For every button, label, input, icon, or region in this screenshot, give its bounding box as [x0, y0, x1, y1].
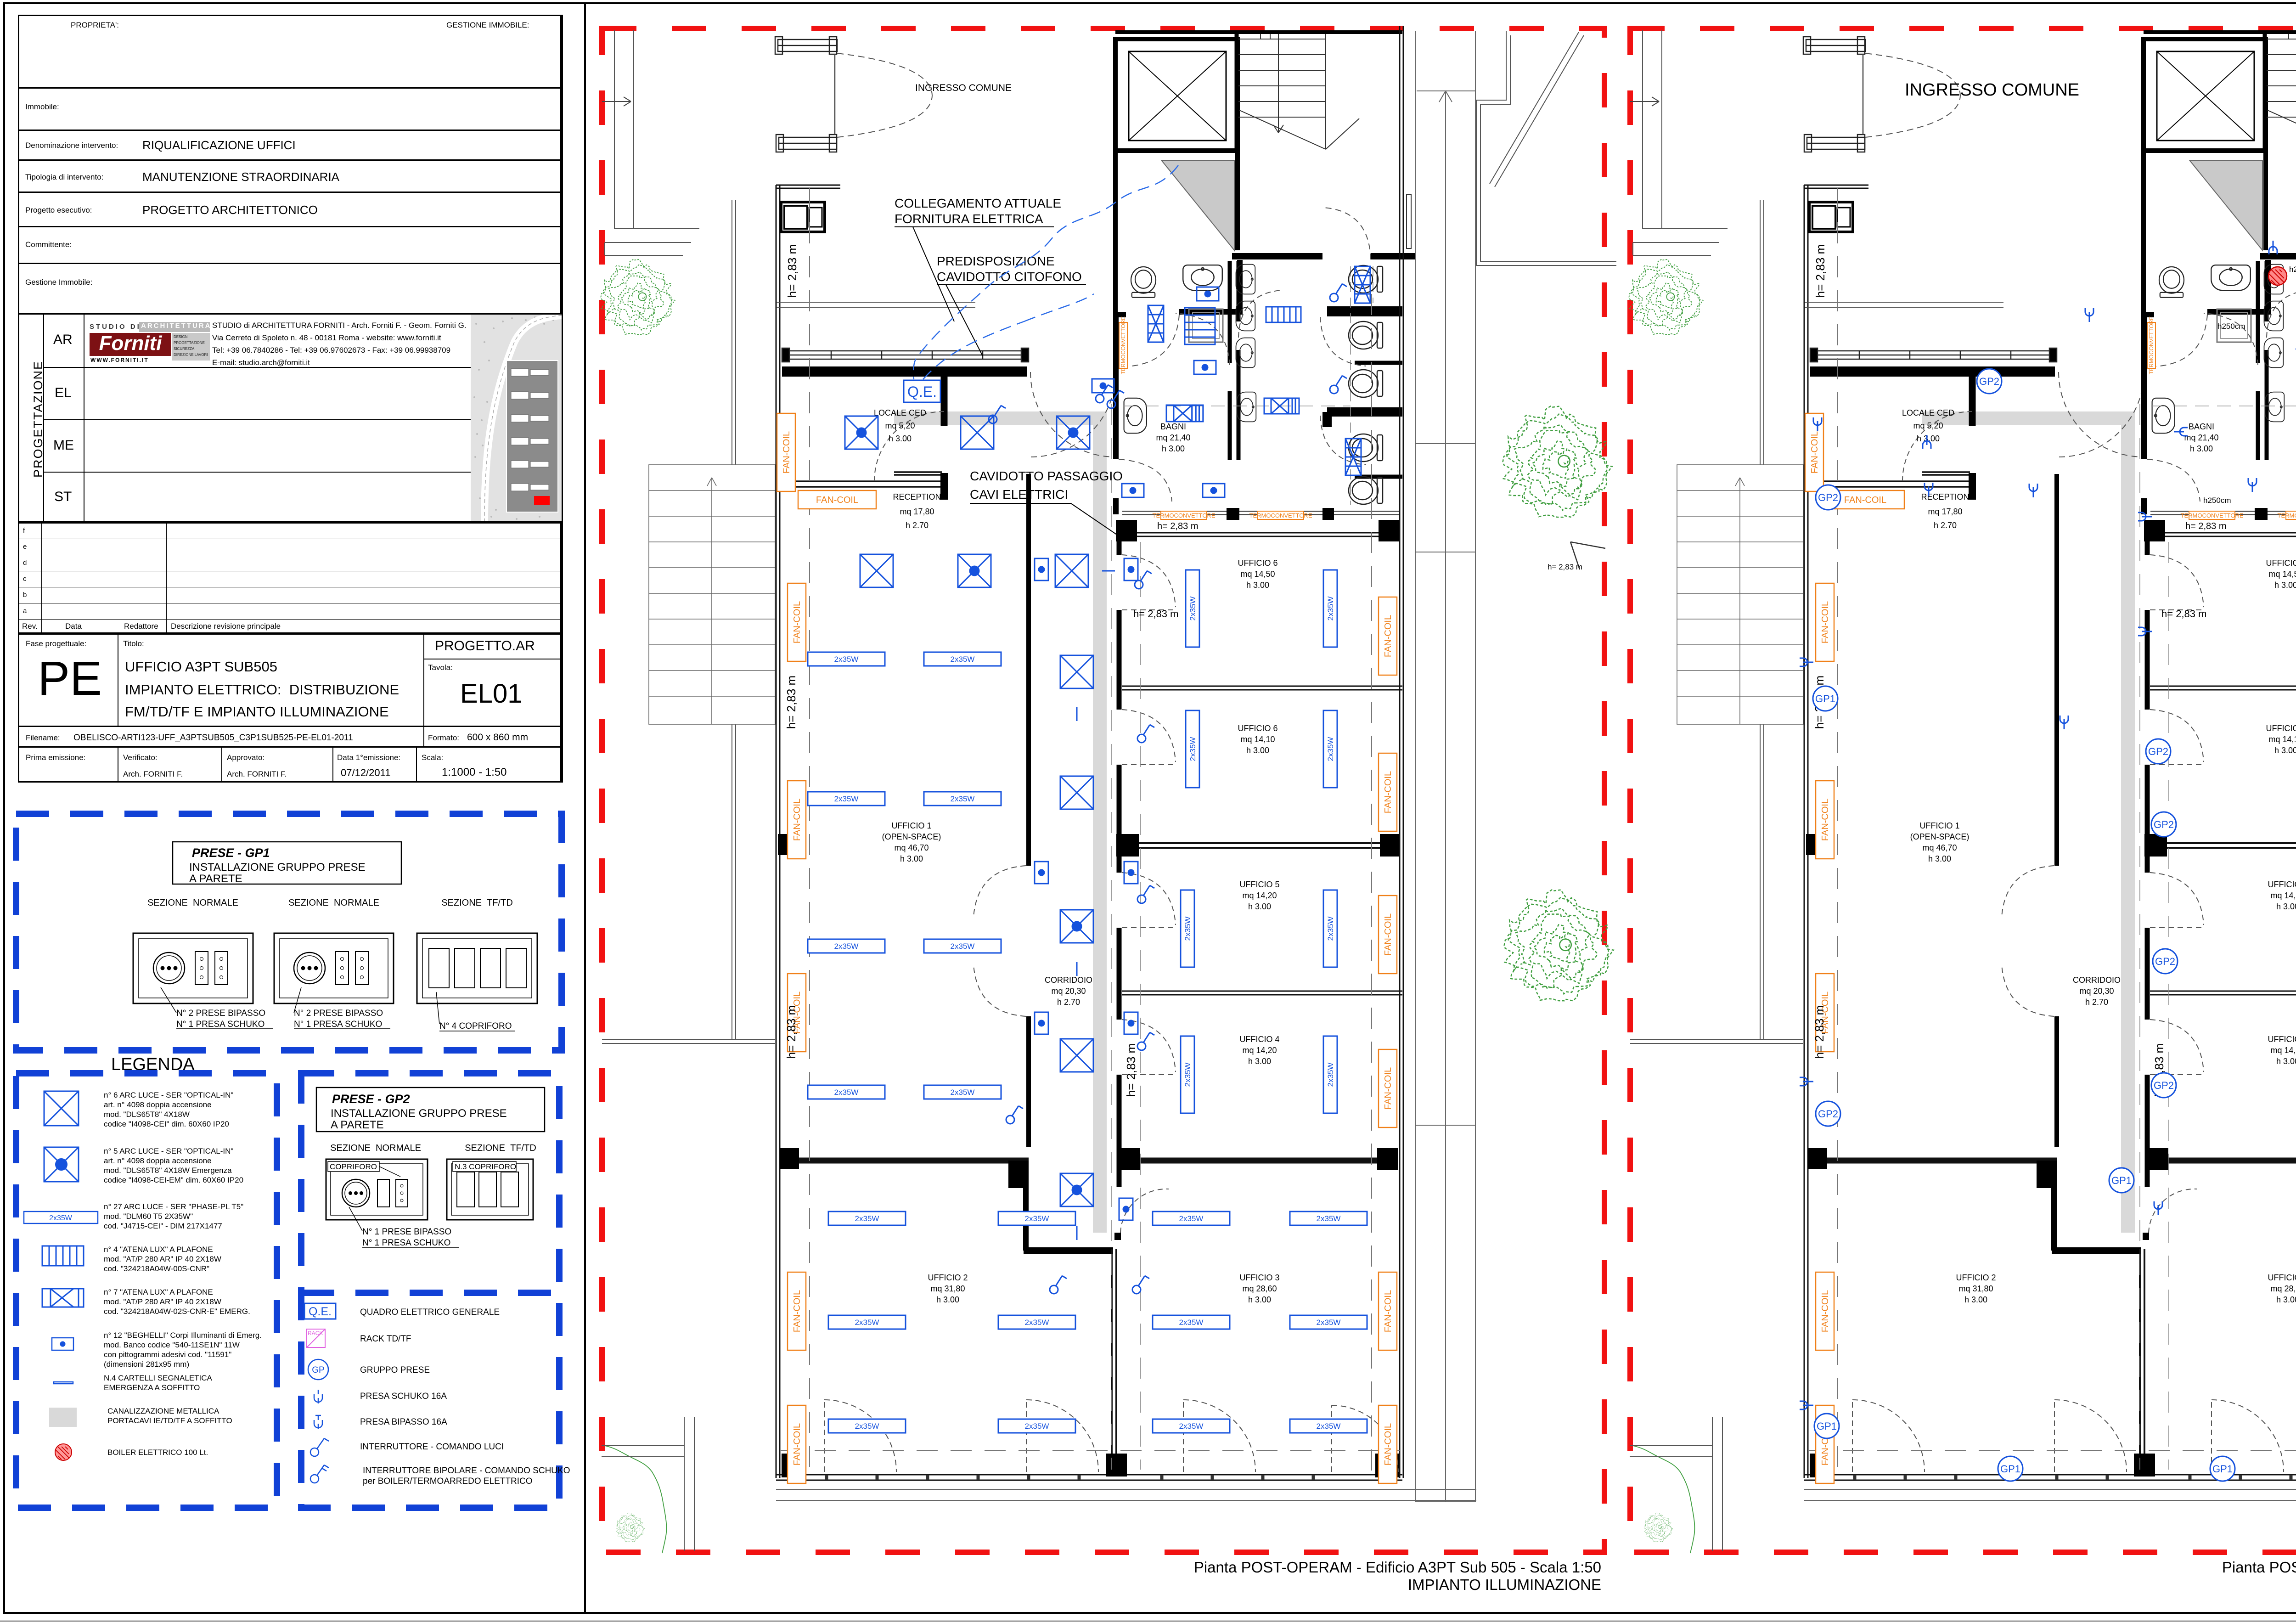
svg-text:INGRESSO COMUNE: INGRESSO COMUNE	[915, 83, 1012, 93]
svg-text:n° 4 "ATENA LUX" A PLAFONE: n° 4 "ATENA LUX" A PLAFONE	[104, 1245, 213, 1254]
svg-text:art. n° 4098 doppia accensione: art. n° 4098 doppia accensione	[104, 1156, 212, 1165]
svg-text:PRESE - GP1: PRESE - GP1	[192, 846, 270, 860]
svg-text:n° 7 "ATENA LUX" A PLAFONE: n° 7 "ATENA LUX" A PLAFONE	[104, 1288, 213, 1296]
svg-text:BOILER ELETTRICO 100 Lt.: BOILER ELETTRICO 100 Lt.	[107, 1448, 208, 1457]
svg-text:INTERRUTTORE - COMANDO LUCI: INTERRUTTORE - COMANDO LUCI	[360, 1442, 504, 1452]
svg-text:n° 6 ARC LUCE - SER "OPTICAL-I: n° 6 ARC LUCE - SER "OPTICAL-IN"	[104, 1091, 233, 1099]
svg-text:con pittogrammi adesivi cod. ": con pittogrammi adesivi cod. "11591"	[104, 1350, 231, 1359]
svg-text:Pianta POST-OPERAM - Edificio: Pianta POST-OPERAM - Edificio A3PT Sub 5…	[2222, 1559, 2296, 1576]
svg-text:h250cm: h250cm	[2217, 322, 2245, 331]
svg-text:N° 4 COPRIFORO: N° 4 COPRIFORO	[439, 1021, 512, 1031]
svg-text:PORTACAVI IE/TD/TF A SOFFITTO: PORTACAVI IE/TD/TF A SOFFITTO	[107, 1416, 232, 1425]
svg-text:codice "I4098-CEI" dim. 60X60: codice "I4098-CEI" dim. 60X60 IP20	[104, 1120, 229, 1128]
svg-text:mod. "DLS65T8" 4X18W Emergenza: mod. "DLS65T8" 4X18W Emergenza	[104, 1166, 232, 1175]
svg-text:mod. "DLM60 T5 2X35W": mod. "DLM60 T5 2X35W"	[104, 1212, 193, 1221]
svg-text:cod. "324218A04W-02S-CNR-E" EM: cod. "324218A04W-02S-CNR-E" EMERG.	[104, 1307, 250, 1316]
svg-text:mod. "AT/P 280 AR" IP 40 2X18W: mod. "AT/P 280 AR" IP 40 2X18W	[104, 1255, 221, 1263]
svg-text:art. n° 4098 doppia accensione: art. n° 4098 doppia accensione	[104, 1100, 212, 1109]
svg-text:COPRIFORO: COPRIFORO	[330, 1162, 377, 1171]
svg-text:(dimensioni 281x95 mm): (dimensioni 281x95 mm)	[104, 1360, 189, 1369]
svg-text:A PARETE: A PARETE	[331, 1119, 384, 1131]
svg-text:cod. "324218A04W-00S-CNR": cod. "324218A04W-00S-CNR"	[104, 1264, 209, 1273]
svg-text:N.4 CARTELLI SEGNALETICA: N.4 CARTELLI SEGNALETICA	[104, 1374, 213, 1382]
svg-text:cod. "J4715-CEI" - DIM 217X147: cod. "J4715-CEI" - DIM 217X1477	[104, 1222, 222, 1230]
svg-text:N° 1 PRESA SCHUKO: N° 1 PRESA SCHUKO	[176, 1020, 264, 1029]
svg-text:FORNITURA ELETTRICA: FORNITURA ELETTRICA	[895, 212, 1043, 226]
svg-text:RACK: RACK	[308, 1330, 323, 1336]
svg-text:PRESA SCHUKO 16A: PRESA SCHUKO 16A	[360, 1392, 447, 1401]
svg-text:PRESA BIPASSO 16A: PRESA BIPASSO 16A	[360, 1417, 447, 1427]
svg-text:INSTALLAZIONE GRUPPO PRESE: INSTALLAZIONE GRUPPO PRESE	[331, 1107, 507, 1120]
svg-text:n° 12 "BEGHELLI" Corpi Illumin: n° 12 "BEGHELLI" Corpi Illuminanti di Em…	[104, 1331, 262, 1340]
svg-text:COLLEGAMENTO ATTUALE: COLLEGAMENTO ATTUALE	[895, 196, 1061, 210]
svg-text:N° 2 PRESE BIPASSO: N° 2 PRESE BIPASSO	[294, 1009, 383, 1018]
svg-text:QUADRO ELETTRICO GENERALE: QUADRO ELETTRICO GENERALE	[360, 1307, 500, 1317]
svg-text:CAVIDOTTO PASSAGGIO: CAVIDOTTO PASSAGGIO	[970, 469, 1123, 483]
svg-text:N.3 COPRIFORO: N.3 COPRIFORO	[455, 1162, 516, 1171]
svg-text:CAVI ELETTRICI: CAVI ELETTRICI	[970, 487, 1068, 502]
svg-text:n° 5 ARC LUCE - SER "OPTICAL-I: n° 5 ARC LUCE - SER "OPTICAL-IN"	[104, 1147, 233, 1155]
svg-text:GP: GP	[312, 1365, 324, 1375]
svg-text:2x35W: 2x35W	[49, 1214, 73, 1222]
svg-text:CAVIDOTTO CITOFONO: CAVIDOTTO CITOFONO	[937, 270, 1082, 284]
svg-text:SEZIONE TF/TD: SEZIONE TF/TD	[465, 1143, 536, 1153]
svg-text:mod. "DLS65T8" 4X18W: mod. "DLS65T8" 4X18W	[104, 1110, 190, 1119]
svg-text:n° 27 ARC LUCE - SER "PHASE-PL: n° 27 ARC LUCE - SER "PHASE-PL T5"	[104, 1202, 243, 1211]
svg-text:Q.E.: Q.E.	[309, 1305, 332, 1318]
svg-text:SEZIONE NORMALE: SEZIONE NORMALE	[288, 898, 379, 908]
svg-text:A PARETE: A PARETE	[189, 873, 242, 885]
svg-text:codice "I4098-CEI-EM" dim. 60X: codice "I4098-CEI-EM" dim. 60X60 IP20	[104, 1176, 243, 1184]
svg-text:N° 1 PRESA SCHUKO: N° 1 PRESA SCHUKO	[294, 1020, 382, 1029]
svg-text:INGRESSO COMUNE: INGRESSO COMUNE	[1905, 80, 2079, 100]
svg-text:mod. "AT/P 280 AR" IP 40 2X18W: mod. "AT/P 280 AR" IP 40 2X18W	[104, 1297, 221, 1306]
svg-text:N° 1 PRESA SCHUKO: N° 1 PRESA SCHUKO	[362, 1238, 450, 1248]
svg-text:mod. Banco codice "540-11SE1N": mod. Banco codice "540-11SE1N" 11W	[104, 1341, 240, 1349]
svg-text:PREDISPOSIZIONE: PREDISPOSIZIONE	[937, 254, 1055, 268]
svg-text:INSTALLAZIONE GRUPPO PRESE: INSTALLAZIONE GRUPPO PRESE	[189, 861, 366, 873]
svg-text:GRUPPO PRESE: GRUPPO PRESE	[360, 1365, 430, 1375]
svg-text:PRESE - GP2: PRESE - GP2	[332, 1092, 410, 1106]
svg-text:SEZIONE NORMALE: SEZIONE NORMALE	[330, 1143, 421, 1153]
svg-text:CANALIZZAZIONE METALLICA: CANALIZZAZIONE METALLICA	[107, 1407, 219, 1415]
svg-text:INTERRUTTORE BIPOLARE - COMAND: INTERRUTTORE BIPOLARE - COMANDO SCHUKO	[363, 1466, 570, 1476]
svg-text:N° 2 PRESE BIPASSO: N° 2 PRESE BIPASSO	[176, 1009, 265, 1018]
svg-text:RACK TD/TF: RACK TD/TF	[360, 1334, 411, 1344]
svg-text:h250cm: h250cm	[2203, 496, 2231, 505]
svg-text:EMERGENZA A SOFFITTO: EMERGENZA A SOFFITTO	[104, 1383, 200, 1392]
svg-text:Pianta POST-OPERAM - Edificio: Pianta POST-OPERAM - Edificio A3PT Sub 5…	[1194, 1559, 1601, 1576]
svg-text:N° 1 PRESE BIPASSO: N° 1 PRESE BIPASSO	[362, 1227, 451, 1237]
svg-text:SEZIONE NORMALE: SEZIONE NORMALE	[147, 898, 238, 908]
svg-text:SEZIONE TF/TD: SEZIONE TF/TD	[441, 898, 513, 908]
svg-text:IMPIANTO ILLUMINAZIONE: IMPIANTO ILLUMINAZIONE	[1408, 1576, 1601, 1593]
svg-text:Q.E.: Q.E.	[907, 383, 937, 400]
svg-text:h250cm: h250cm	[2289, 265, 2296, 274]
svg-text:per BOILER/TERMOARREDO ELETTRI: per BOILER/TERMOARREDO ELETTRICO	[363, 1476, 533, 1486]
